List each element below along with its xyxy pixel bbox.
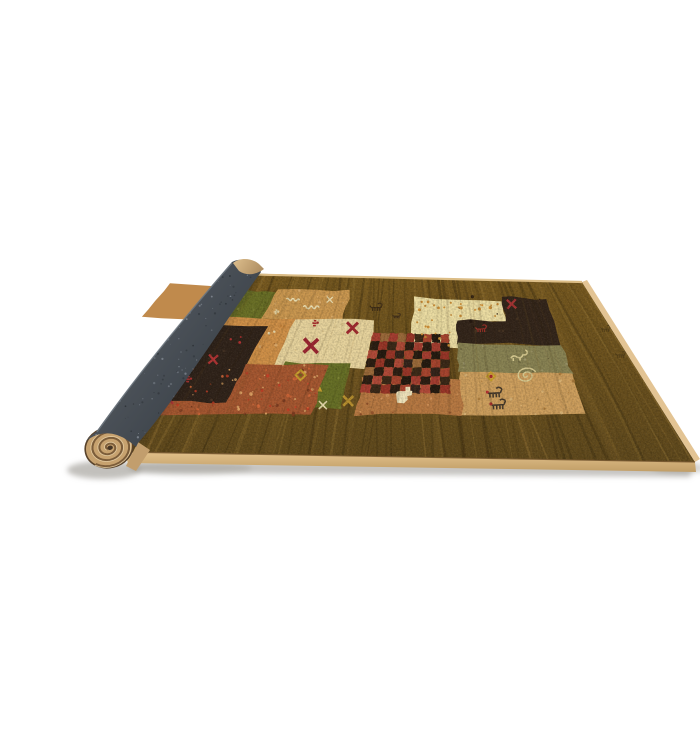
product-photo (40, 16, 700, 716)
rug-product-image (40, 16, 700, 716)
